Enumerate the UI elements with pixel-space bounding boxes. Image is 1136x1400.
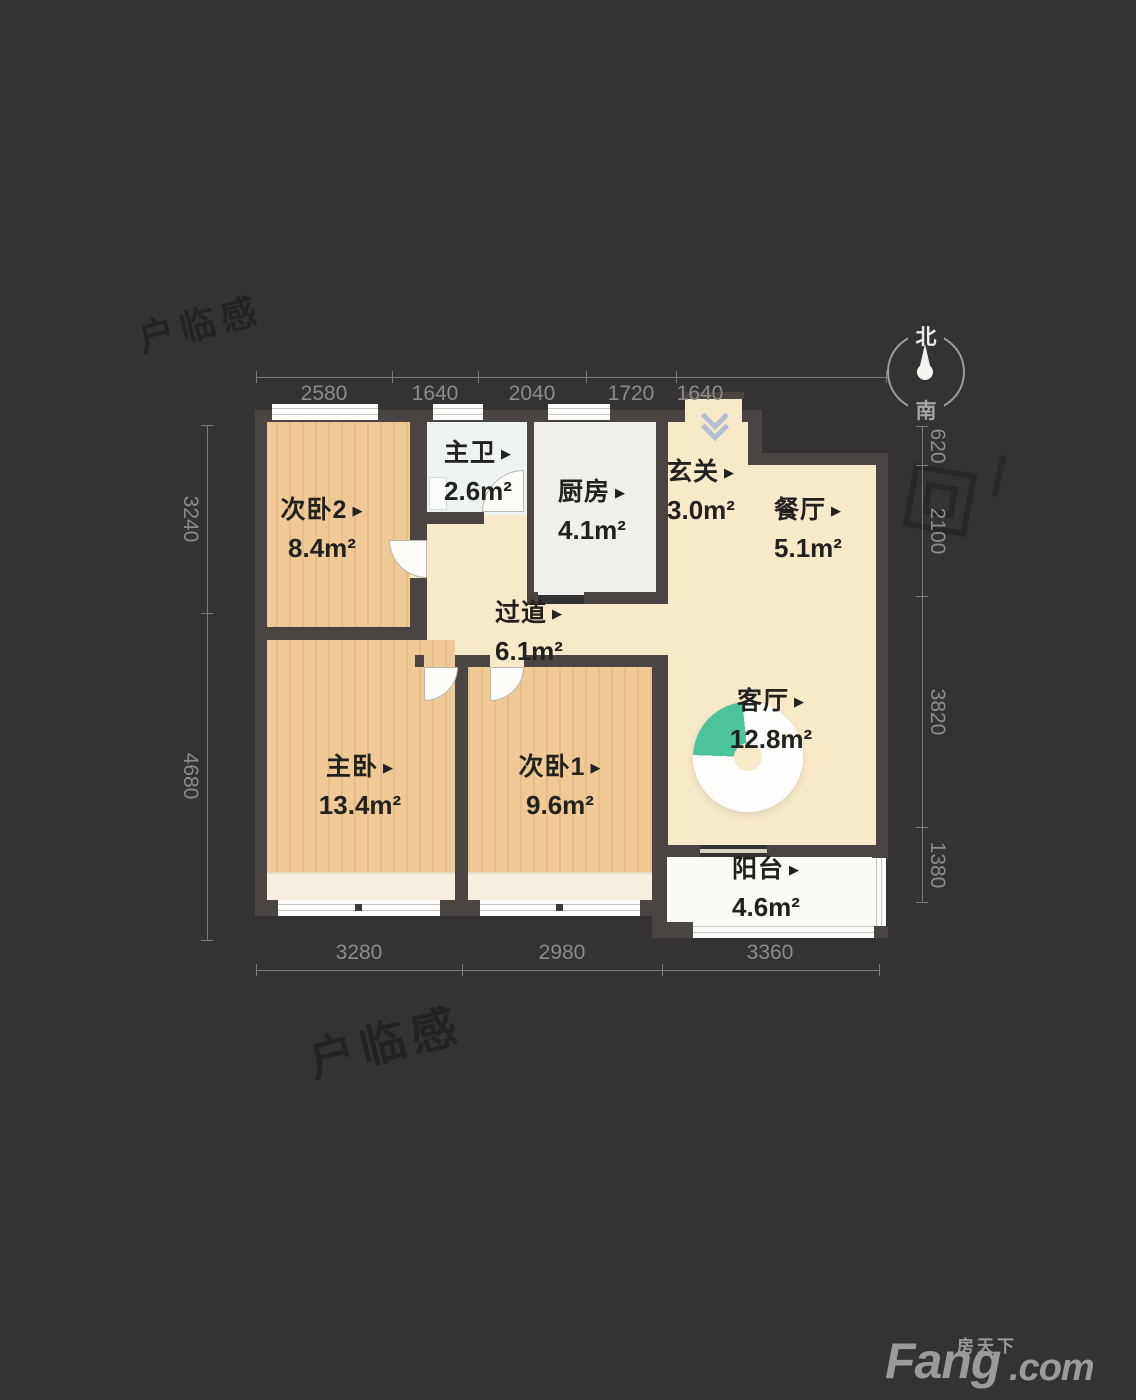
dim-tick	[916, 827, 928, 828]
room-label-master-bath[interactable]: 主卫▶ 2.6m²	[444, 433, 512, 507]
fang-logo-en: Fang	[885, 1332, 1000, 1390]
window	[693, 922, 874, 938]
dim-tick	[879, 964, 880, 976]
dim-value: 3820	[925, 689, 949, 736]
window	[872, 858, 886, 926]
room-name: 主卫	[444, 439, 496, 467]
room-label-balcony[interactable]: 阳台▶ 4.6m²	[732, 849, 800, 923]
dim-value: 4680	[178, 753, 202, 800]
room-label-dining[interactable]: 餐厅▶ 5.1m²	[774, 490, 842, 564]
wall-segment	[410, 512, 484, 524]
window	[433, 404, 483, 420]
room-arrow-icon: ▶	[352, 503, 363, 518]
dim-tick	[462, 964, 463, 976]
room-label-bedroom1[interactable]: 次卧1▶ 9.6m²	[519, 747, 602, 821]
room-label-kitchen[interactable]: 厨房▶ 4.1m²	[558, 472, 626, 546]
room-name: 次卧2	[281, 496, 348, 524]
dim-tick	[586, 371, 587, 383]
room-area: 9.6m²	[519, 790, 602, 821]
fang-logo-suffix: .com	[1009, 1347, 1094, 1390]
room-name: 次卧1	[519, 753, 586, 781]
room-area: 4.1m²	[558, 515, 626, 546]
room-arrow-icon: ▶	[794, 694, 805, 709]
wall-segment	[410, 410, 427, 545]
room-label-bedroom2[interactable]: 次卧2▶ 8.4m²	[281, 490, 364, 564]
dim-value: 1380	[925, 842, 949, 889]
room-arrow-icon: ▶	[615, 485, 626, 500]
dim-tick	[201, 940, 213, 941]
dim-value: 2980	[539, 941, 586, 965]
wall-segment	[527, 410, 534, 604]
room-area: 3.0m²	[667, 495, 735, 526]
wall-segment	[410, 578, 427, 632]
wall-segment	[748, 453, 888, 465]
room-arrow-icon: ▶	[831, 503, 842, 518]
dim-value: 1640	[677, 382, 724, 406]
room-area: 8.4m²	[281, 533, 364, 564]
room-label-hallway[interactable]: 过道▶ 6.1m²	[495, 593, 563, 667]
dim-tick	[256, 964, 257, 976]
dimension-line-left	[207, 425, 208, 940]
wall-segment	[667, 922, 693, 938]
dim-value: 2580	[301, 382, 348, 406]
dim-tick	[916, 596, 928, 597]
dim-tick	[392, 371, 393, 383]
wall-segment	[255, 410, 267, 916]
room-name: 餐厅	[774, 496, 826, 524]
dim-value: 3360	[747, 941, 794, 965]
window-mullion	[556, 904, 563, 911]
watermark-text: 户临感	[301, 989, 468, 1091]
room-name: 客厅	[737, 687, 789, 715]
room-arrow-icon: ▶	[789, 862, 800, 877]
room-arrow-icon: ▶	[501, 446, 512, 461]
room-area: 6.1m²	[495, 636, 563, 667]
dim-tick	[916, 465, 928, 466]
wall-segment	[876, 453, 888, 857]
room-name: 主卧	[326, 753, 378, 781]
room-arrow-icon: ▶	[552, 606, 563, 621]
room-arrow-icon: ▶	[724, 465, 735, 480]
dim-value: 3280	[336, 941, 383, 965]
wall-segment	[415, 655, 424, 667]
compass: 北 南	[880, 300, 980, 450]
room-label-entry[interactable]: 玄关▶ 3.0m²	[667, 452, 735, 526]
fang-logo: 房天下 Fang .com	[883, 1330, 1133, 1396]
room-name: 过道	[495, 599, 547, 627]
dim-tick	[201, 425, 213, 426]
dimension-line-top	[256, 377, 886, 378]
dim-value: 1640	[412, 382, 459, 406]
room-arrow-icon: ▶	[590, 760, 601, 775]
dim-tick	[201, 613, 213, 614]
watermark-mark	[992, 455, 1007, 497]
room-area: 13.4m²	[319, 790, 401, 821]
dim-tick	[478, 371, 479, 383]
room-name: 玄关	[667, 458, 719, 486]
room-label-living[interactable]: 客厅▶ 12.8m²	[730, 681, 812, 755]
room-label-master[interactable]: 主卧▶ 13.4m²	[319, 747, 401, 821]
dim-tick	[256, 371, 257, 383]
room-area: 4.6m²	[732, 892, 800, 923]
room-name: 厨房	[558, 478, 610, 506]
room-arrow-icon: ▶	[383, 760, 394, 775]
dim-value: 3240	[178, 496, 202, 543]
dim-value: 2100	[925, 508, 949, 555]
room-name: 阳台	[732, 855, 784, 883]
wall-segment	[455, 655, 468, 916]
wall-segment	[667, 845, 700, 857]
dimension-line-bottom	[256, 970, 879, 971]
dimension-line-right	[922, 426, 923, 902]
dim-value: 2040	[509, 382, 556, 406]
wall-segment	[652, 845, 667, 938]
window	[548, 404, 610, 420]
window	[272, 404, 378, 420]
room-area: 12.8m²	[730, 724, 812, 755]
room-area: 2.6m²	[444, 476, 512, 507]
floorplan-screenshot: { "ui": { "arrow": "▶" }, "rooms": [ { "…	[0, 0, 1136, 1400]
watermark-text: 户临感	[133, 282, 268, 363]
wall-segment	[255, 627, 427, 640]
window-mullion	[355, 904, 362, 911]
compass-south-label: 南	[916, 395, 937, 425]
dim-tick	[662, 964, 663, 976]
compass-needle-dot	[917, 364, 933, 380]
wall-segment	[652, 667, 668, 845]
dim-tick	[916, 902, 928, 903]
dim-value: 1720	[608, 382, 655, 406]
room-area: 5.1m²	[774, 533, 842, 564]
